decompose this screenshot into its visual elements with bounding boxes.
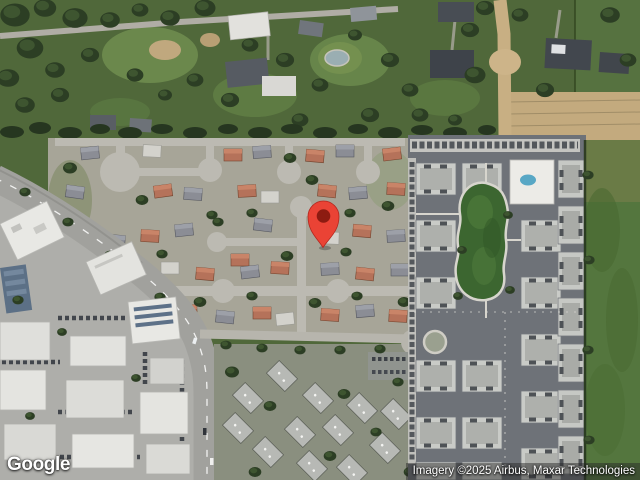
office-complex bbox=[200, 329, 427, 480]
attribution-text: Imagery ©2025 Airbus, Maxar Technologies bbox=[413, 465, 635, 477]
google-logo[interactable]: Google bbox=[7, 454, 70, 476]
pin-inner-dot bbox=[317, 209, 331, 223]
green-field bbox=[582, 140, 640, 480]
marker-shadow bbox=[319, 246, 331, 250]
apartment-complex bbox=[408, 135, 586, 480]
map-canvas[interactable]: Google Imagery ©2025 Airbus, Maxar Techn… bbox=[0, 0, 640, 480]
rural-area bbox=[0, 0, 640, 142]
satellite-imagery bbox=[0, 0, 640, 480]
attribution-bar: Imagery ©2025 Airbus, Maxar Technologies bbox=[406, 463, 640, 480]
